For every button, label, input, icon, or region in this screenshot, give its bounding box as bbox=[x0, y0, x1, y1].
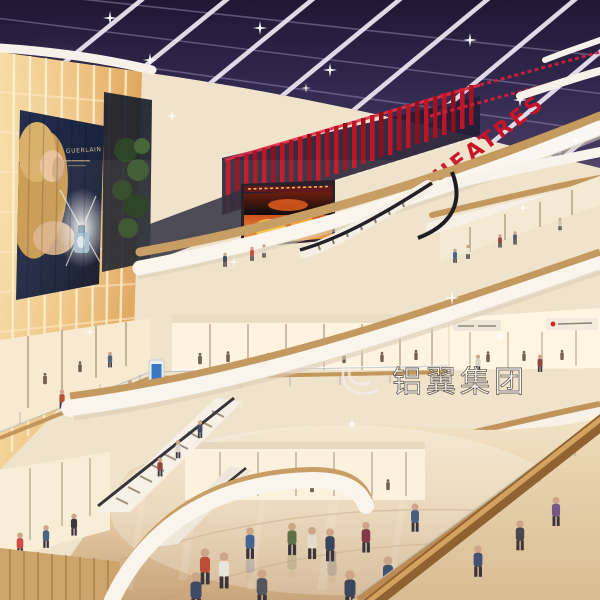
watermark-text: 铝翼集团 bbox=[392, 365, 528, 400]
scene-canvas: GUERLAIN THEATRES bbox=[0, 0, 600, 600]
mall-atrium-rendering: GUERLAIN THEATRES bbox=[0, 0, 600, 600]
